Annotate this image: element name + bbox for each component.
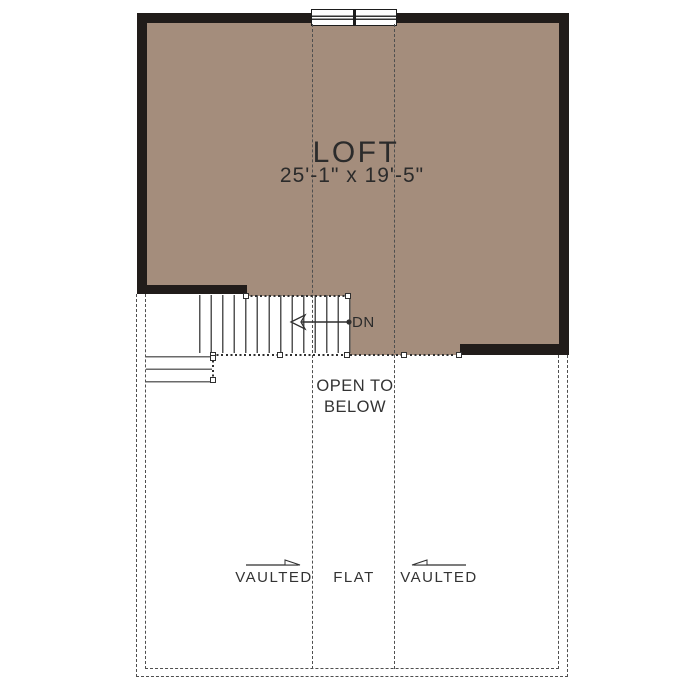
railing-post — [401, 352, 407, 358]
lower-outline-bottom-inner — [145, 668, 559, 669]
lower-outline-bottom-outer — [136, 676, 568, 677]
ceiling-zone-label-vaulted-left: VAULTED — [235, 569, 312, 586]
lower-outline-right-outer — [567, 355, 568, 677]
stair-railing-top — [246, 295, 348, 297]
vault-slope-arrow-left-icon — [246, 558, 302, 568]
lower-outline-left-inner — [145, 294, 146, 669]
wall-bottom-right — [460, 344, 569, 355]
window-pane-right — [356, 10, 397, 25]
loft-edge-railing — [212, 354, 460, 356]
open-to-below-line1: OPEN TO — [316, 376, 393, 397]
room-dimensions-label: 25'-1" x 19'-5" — [280, 164, 424, 188]
railing-post — [210, 377, 216, 383]
wall-bottom-left — [137, 285, 247, 294]
ceiling-break-line-right — [394, 24, 395, 669]
railing-post — [345, 293, 351, 299]
open-to-below-line2: BELOW — [316, 397, 393, 418]
stair-direction-label: DN — [352, 314, 375, 331]
railing-post — [210, 355, 216, 361]
open-to-below-label: OPEN TO BELOW — [316, 376, 393, 419]
railing-post — [456, 352, 462, 358]
window-pane-left — [312, 10, 353, 25]
vault-slope-arrow-right-icon — [410, 558, 468, 568]
wall-left — [137, 13, 147, 294]
loft-floor-plan: DN LOFT 25'-1" x 19'-5" OPEN TO BELOW VA… — [0, 0, 700, 700]
ceiling-zone-label-flat: FLAT — [333, 569, 375, 586]
ceiling-zone-label-vaulted-right: VAULTED — [400, 569, 477, 586]
railing-post — [277, 352, 283, 358]
railing-post — [344, 352, 350, 358]
railing-post — [243, 293, 249, 299]
stair-down-arrow-icon — [288, 310, 354, 334]
lower-outline-left-outer — [136, 294, 137, 677]
window — [311, 9, 397, 26]
lower-stair-treads — [146, 356, 212, 384]
wall-right — [559, 13, 569, 355]
lower-outline-right-inner — [558, 355, 559, 669]
